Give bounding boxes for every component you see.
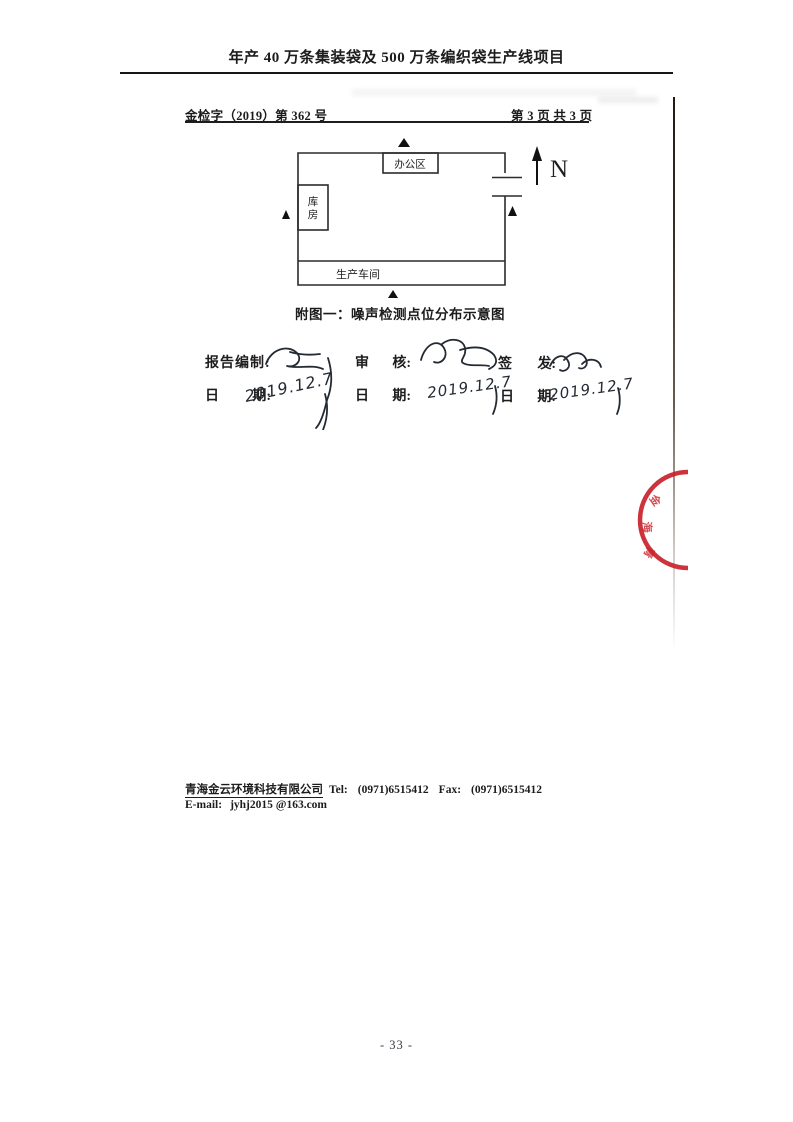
footer-tel-label: Tel: — [329, 784, 348, 796]
page-title: 年产 40 万条集装袋及 500 万条编织袋生产线项目 — [0, 46, 793, 67]
footer-company-name: 青海金云环境科技有限公司 — [185, 784, 323, 798]
footer-fax-value: (0971)6515412 — [471, 784, 542, 796]
footer-email-label: E-mail: — [185, 799, 222, 811]
north-label: N — [550, 156, 568, 183]
room-warehouse-label-line1: 库 — [308, 195, 319, 208]
footer-contact-line: 青海金云环境科技有限公司Tel:(0971)6515412Fax:(0971)6… — [185, 781, 542, 797]
page-number: - 33 - — [0, 1038, 793, 1053]
plant-walls — [298, 153, 522, 285]
stamp-char: 海 — [640, 521, 655, 533]
plant-layout-diagram: 办公区 库 房 生产车间 N — [270, 133, 580, 305]
footer-tel-value: (0971)6515412 — [358, 784, 429, 796]
handwritten-signoff-layer: 2019.12.7 2019.12.7 2019.12.7 — [190, 330, 640, 430]
noise-point-marker-bottom — [388, 290, 398, 298]
footer-email-value: jyhj2015 @163.com — [230, 799, 327, 811]
scan-smudge — [352, 89, 637, 96]
signature-scribble-issue — [550, 353, 601, 371]
room-office-label: 办公区 — [394, 158, 426, 171]
north-arrow-icon — [532, 146, 542, 185]
header-underline — [185, 121, 589, 123]
handwritten-date-issue: 2019.12.7 — [548, 374, 635, 404]
footer-email-line: E-mail:jyhj2015 @163.com — [185, 799, 327, 811]
scan-smudge — [598, 97, 658, 103]
handwritten-date-review: 2019.12.7 — [426, 372, 513, 402]
noise-point-marker-right — [508, 206, 517, 216]
company-stamp: 金 海 青 — [618, 462, 688, 582]
stamp-char: 青 — [641, 545, 658, 561]
title-underline — [120, 72, 673, 74]
signature-scribble-review — [421, 340, 496, 369]
diagram-caption: 附图一：噪声检测点位分布示意图 — [295, 303, 505, 323]
noise-point-marker-left — [282, 210, 290, 219]
scanned-report-page: 年产 40 万条集装袋及 500 万条编织袋生产线项目 金检字（2019）第 3… — [0, 0, 793, 1122]
room-warehouse-label-line2: 房 — [308, 208, 319, 221]
noise-point-marker-top — [398, 138, 410, 147]
footer-fax-label: Fax: — [439, 784, 461, 796]
room-workshop-label: 生产车间 — [336, 267, 380, 281]
handwritten-date-prepared: 2019.12.7 — [243, 369, 335, 406]
